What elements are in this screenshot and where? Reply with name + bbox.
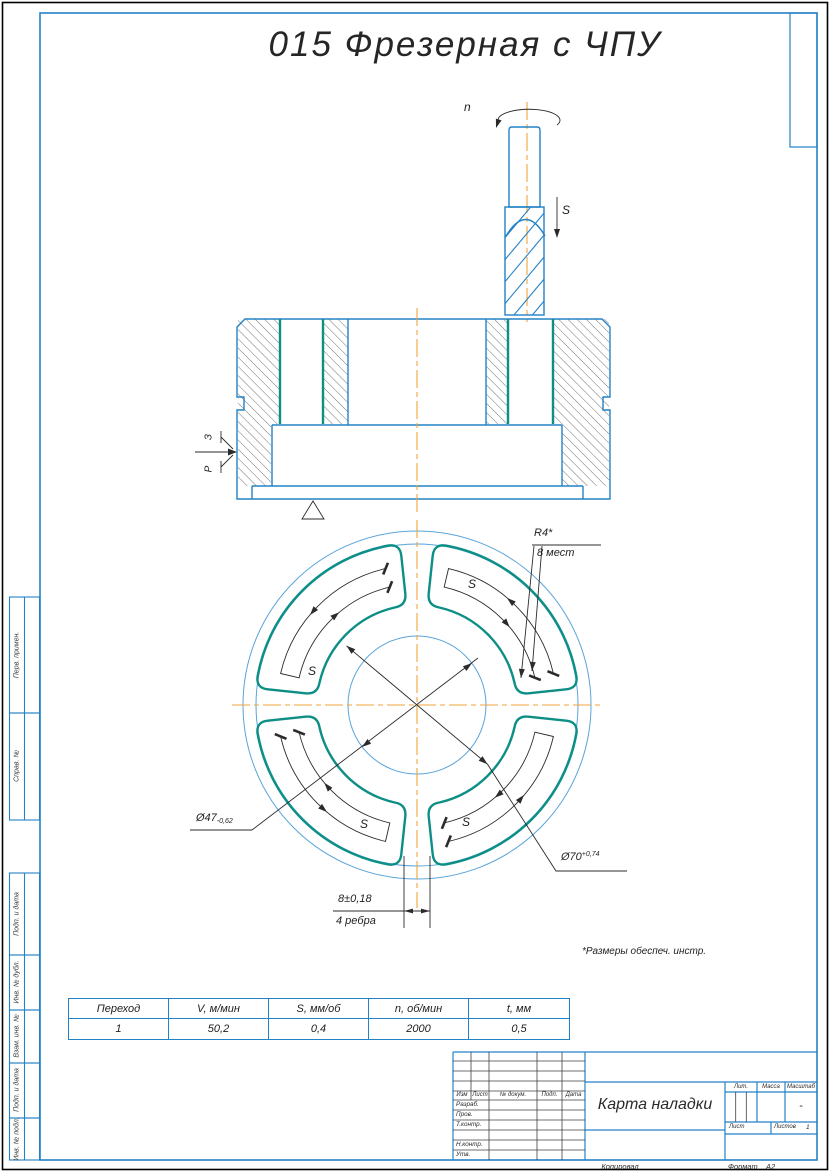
cell-speed: 50,2: [169, 1019, 269, 1039]
rib-dimension-value: 8±0,18: [338, 893, 372, 905]
tb-col-docnum: № докум.: [489, 1092, 537, 1098]
kopiroval-label: Копировал: [575, 1162, 665, 1171]
end-mill: [496, 102, 560, 356]
top-right-stamp-box: [790, 13, 817, 147]
tb-col-izm: Изм: [453, 1092, 471, 1098]
radius-callout-places: 8 мест: [537, 547, 574, 559]
operation-title: 015 Фрезерная с ЧПУ: [205, 25, 725, 65]
col-header-speed: V, м/мин: [169, 999, 269, 1019]
cell-rpm: 2000: [369, 1019, 469, 1039]
tb-row-tkontr: Т.контр.: [456, 1121, 481, 1128]
cell-feed: 0,4: [269, 1019, 369, 1039]
cell-depth: 0,5: [469, 1019, 569, 1039]
format-value: А2: [766, 1162, 775, 1171]
margin-inv-podl: Инв. № подл.: [14, 1117, 21, 1160]
dia47-tolerance: -0,62: [217, 818, 233, 825]
milled-slot: [429, 545, 577, 693]
tb-row-razrab: Разраб.: [456, 1101, 479, 1108]
tb-massa-label: Масса: [757, 1084, 785, 1090]
drawing-canvas: [0, 0, 830, 1172]
tb-masshtab-value: -: [785, 1100, 817, 1112]
radius-callout: [519, 545, 601, 678]
section-view: [195, 308, 610, 519]
tb-col-podp: Подп.: [537, 1092, 562, 1098]
tool-shank: [509, 127, 540, 207]
margin-sprav-no: Справ. №: [14, 750, 21, 782]
slot-feed-label-1: S: [308, 664, 316, 678]
document-name: Карта наладки: [585, 1096, 725, 1114]
sheet-frame: [3, 3, 828, 1170]
dia70-tolerance: +0,74: [582, 851, 600, 858]
cutting-modes-table: Переход V, м/мин S, мм/об n, об/мин t, м…: [68, 998, 570, 1040]
feed-arrow: [554, 197, 560, 238]
tb-row-nkontr: Н.контр.: [456, 1141, 483, 1148]
margin-podp-data-1: Подп. и дата: [14, 892, 21, 936]
col-header-rpm: n, об/мин: [369, 999, 469, 1019]
dia47-dimension-text: Ø47-0,62: [196, 812, 233, 825]
dia70-dimension-text: Ø70+0,74: [561, 851, 600, 863]
dia47-value: Ø47: [196, 812, 217, 824]
margin-vzam-inv: Взам. инв. №: [14, 1014, 21, 1057]
support-symbol: [302, 501, 324, 519]
tool-feed-label: S: [562, 203, 570, 217]
col-header-perehod: Переход: [69, 999, 169, 1019]
tb-list-label: Лист: [729, 1124, 744, 1130]
spindle-rotation-arrow: [496, 109, 560, 128]
tb-row-utv: Утв.: [456, 1151, 470, 1158]
margin-perv-primen: Перв. примен.: [14, 632, 21, 679]
slot-feed-label-2: S: [468, 577, 476, 591]
cell-perehod: 1: [69, 1019, 169, 1039]
spindle-speed-label: n: [464, 100, 471, 114]
tb-lit-label: Лит.: [725, 1084, 757, 1090]
tb-col-list: Лист: [471, 1092, 489, 1098]
col-header-depth: t, мм: [469, 999, 569, 1019]
dia70-value: Ø70: [561, 851, 582, 863]
col-header-feed: S, мм/об: [269, 999, 369, 1019]
tb-listov-label: Листов: [774, 1124, 796, 1130]
rib-dimension-note: 4 ребра: [336, 915, 376, 927]
slot-feed-label-4: S: [462, 815, 470, 829]
radius-callout-value: R4*: [534, 527, 552, 539]
tb-col-data: Дата: [562, 1092, 585, 1098]
clamp-symbol: [195, 431, 237, 473]
plan-view: [190, 520, 627, 928]
tb-listov-value: 1: [806, 1124, 810, 1131]
tb-masshtab-label: Масштаб: [785, 1084, 817, 1090]
drawing-sheet: 015 Фрезерная с ЧПУ n S З Р R4* 8 мест Ø…: [0, 0, 830, 1172]
margin-inv-dubl: Инв. № дубл.: [14, 960, 21, 1003]
margin-podp-data-2: Подп. и дата: [14, 1068, 21, 1112]
dia70-dimension: [347, 646, 628, 871]
tb-row-prov: Пров.: [456, 1111, 473, 1118]
clamp-reaction-label: Р: [204, 466, 215, 473]
format-label: Формат: [728, 1162, 758, 1171]
clamp-force-label: З: [204, 434, 215, 440]
slot-feed-label-3: S: [360, 817, 368, 831]
tooling-footnote: *Размеры обеспеч. инстр.: [582, 946, 706, 957]
tool-flutes: [505, 207, 544, 315]
